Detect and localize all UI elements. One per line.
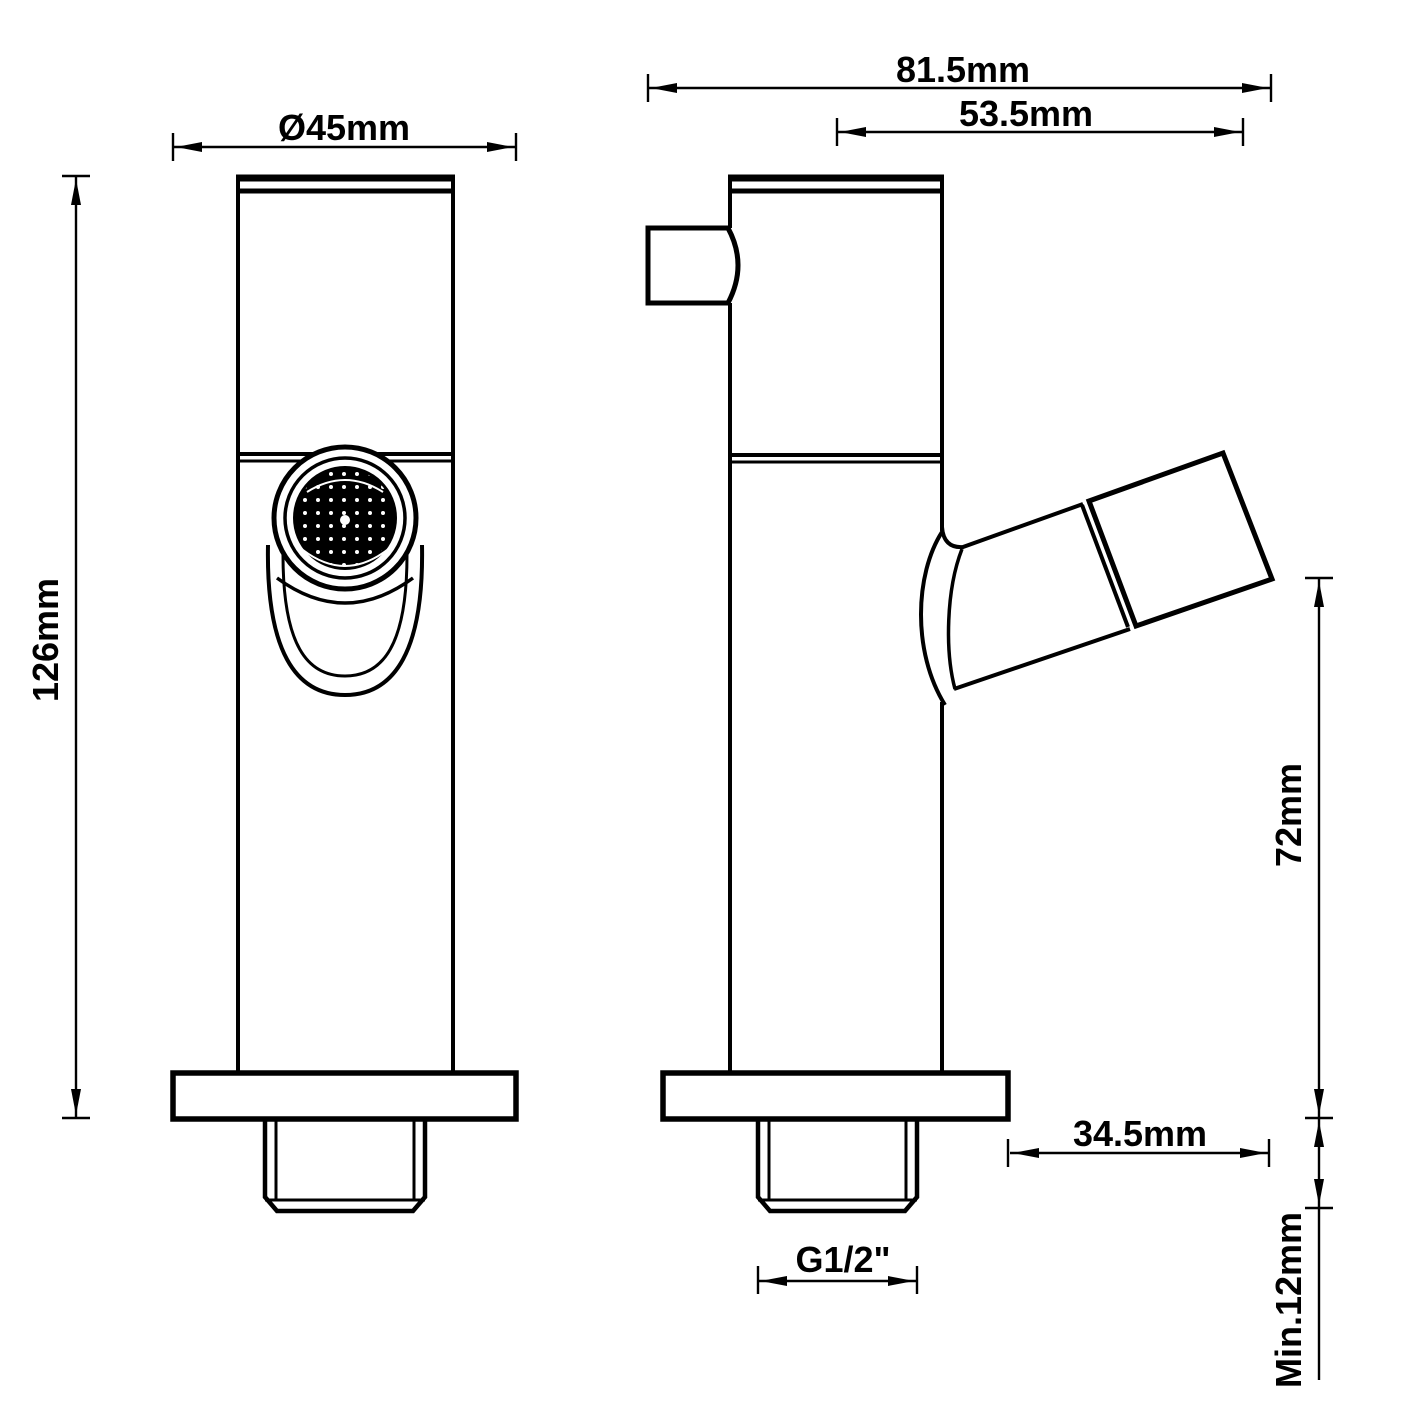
dim-label-spout-clearance: 72mm: [1268, 763, 1309, 867]
side-view: [648, 175, 1272, 1211]
front-thread-pipe: [265, 1119, 425, 1211]
dim-thread-size: G1/2": [758, 1239, 917, 1294]
faucet-technical-drawing: Ø45mm 81.5mm 53.5mm 126mm: [0, 0, 1401, 1422]
dim-thread-length: Min.12mm: [1268, 1121, 1333, 1388]
spray-nozzle: [274, 447, 416, 589]
dim-body-height: 126mm: [25, 176, 90, 1118]
dim-label-thread-size: G1/2": [795, 1239, 890, 1280]
dim-label-body-height: 126mm: [25, 578, 66, 702]
dim-spout-overhang: 34.5mm: [1008, 1113, 1269, 1167]
dim-label-spout-overhang: 34.5mm: [1073, 1113, 1207, 1154]
dim-label-thread-length: Min.12mm: [1268, 1212, 1309, 1388]
side-thread-pipe: [758, 1119, 917, 1211]
dimensions: Ø45mm 81.5mm 53.5mm 126mm: [25, 49, 1333, 1388]
side-flange: [663, 1073, 1008, 1119]
dim-spout-reach: 53.5mm: [837, 93, 1243, 146]
dim-flange-diameter: Ø45mm: [173, 107, 516, 161]
dim-label-spout-reach: 53.5mm: [959, 93, 1093, 134]
front-flange: [173, 1073, 516, 1119]
push-button: [648, 228, 738, 303]
spout: [921, 453, 1272, 705]
dim-label-overall-depth: 81.5mm: [896, 49, 1030, 90]
front-view: [173, 175, 516, 1211]
technical-drawing-page: Ø45mm 81.5mm 53.5mm 126mm: [0, 0, 1401, 1422]
dim-label-flange-diameter: Ø45mm: [278, 107, 410, 148]
